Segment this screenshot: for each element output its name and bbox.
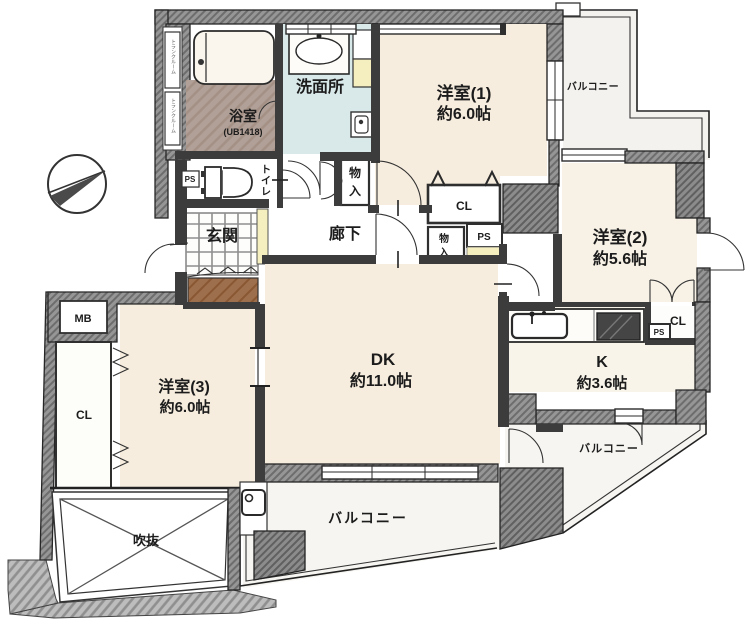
svg-text:トランクルーム: トランクルーム <box>170 98 176 133</box>
svg-text:CL: CL <box>670 314 686 328</box>
svg-text:物: 物 <box>439 232 449 245</box>
svg-text:CL: CL <box>456 199 472 213</box>
svg-text:廊下: 廊下 <box>329 224 361 243</box>
svg-text:洗面所: 洗面所 <box>296 77 344 96</box>
svg-text:バルコニー: バルコニー <box>579 442 639 455</box>
svg-text:MB: MB <box>74 313 91 325</box>
svg-text:約3.6帖: 約3.6帖 <box>577 374 628 392</box>
svg-text:ト: ト <box>261 164 271 176</box>
svg-text:(UB1418): (UB1418) <box>223 127 262 137</box>
svg-text:イ: イ <box>261 175 271 187</box>
svg-text:DK: DK <box>371 350 396 369</box>
svg-text:吹抜: 吹抜 <box>133 533 160 548</box>
svg-text:PS: PS <box>654 328 665 337</box>
svg-text:K: K <box>596 354 608 371</box>
svg-text:洋室(3): 洋室(3) <box>158 377 210 396</box>
svg-text:約11.0帖: 約11.0帖 <box>350 371 412 390</box>
svg-text:玄関: 玄関 <box>206 226 238 245</box>
svg-text:PS: PS <box>185 175 196 184</box>
svg-text:浴室: 浴室 <box>229 108 257 124</box>
svg-text:レ: レ <box>261 187 271 198</box>
svg-text:約6.0帖: 約6.0帖 <box>160 398 211 416</box>
svg-text:CL: CL <box>76 408 92 422</box>
svg-text:トランクルーム: トランクルーム <box>170 39 176 74</box>
svg-text:約6.0帖: 約6.0帖 <box>437 104 491 123</box>
svg-text:バルコニー: バルコニー <box>328 510 408 526</box>
svg-text:入: 入 <box>349 184 361 198</box>
svg-text:物: 物 <box>349 165 361 180</box>
svg-text:PS: PS <box>477 232 491 243</box>
svg-text:バルコニー: バルコニー <box>567 81 619 93</box>
svg-text:洋室(1): 洋室(1) <box>437 83 492 103</box>
svg-text:洋室(2): 洋室(2) <box>593 227 648 247</box>
svg-text:約5.6帖: 約5.6帖 <box>593 249 647 268</box>
